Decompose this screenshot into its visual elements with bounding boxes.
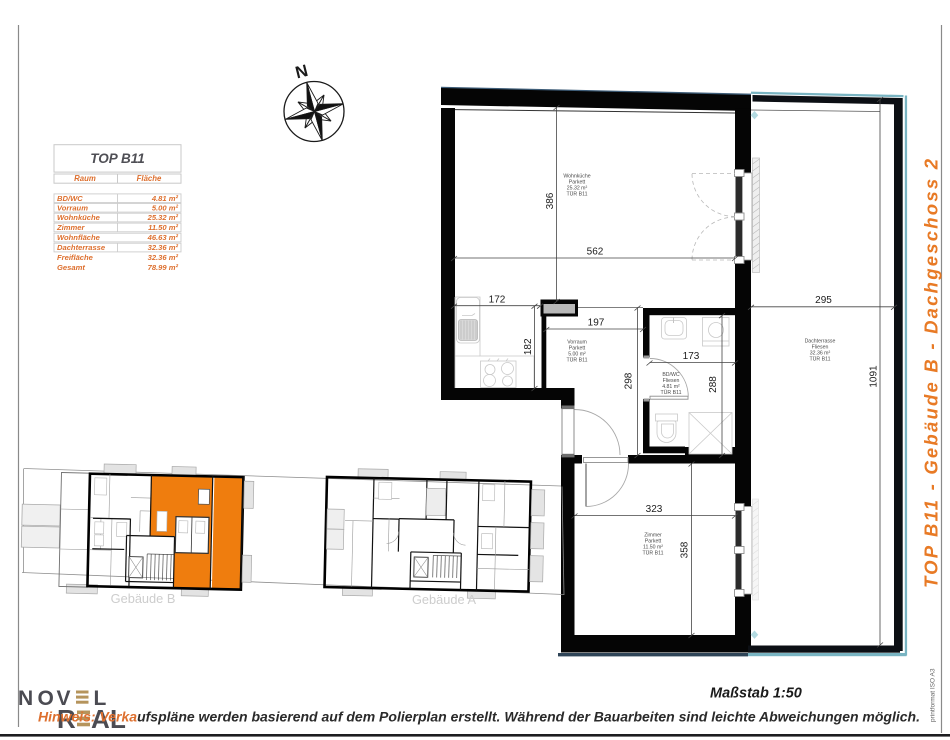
svg-text:Maßstab 1:50: Maßstab 1:50 (710, 686, 802, 702)
svg-text:11.50 m²: 11.50 m² (148, 223, 178, 232)
svg-text:Zimmer: Zimmer (56, 223, 85, 232)
svg-text:N: N (18, 687, 33, 710)
svg-text:358: 358 (680, 541, 691, 558)
svg-text:25.32 m²: 25.32 m² (147, 213, 179, 222)
svg-text:TOP B11 - Gebäude B - Dachgesc: TOP B11 - Gebäude B - Dachgeschoss 2 (921, 158, 942, 588)
svg-text:172: 172 (489, 294, 506, 305)
svg-text:1091: 1091 (868, 365, 879, 388)
svg-text:5.00 m²: 5.00 m² (152, 203, 179, 212)
svg-text:N: N (293, 61, 310, 82)
svg-text:Wohnfläche: Wohnfläche (57, 233, 101, 242)
svg-text:Raum: Raum (74, 174, 96, 183)
svg-text:32.36 m²: 32.36 m² (148, 243, 179, 252)
svg-text:TÜR B11: TÜR B11 (567, 357, 588, 364)
svg-text:Gebäude B: Gebäude B (111, 591, 176, 606)
svg-text:Wohnküche: Wohnküche (57, 213, 101, 222)
svg-text:Vorraum: Vorraum (57, 203, 88, 212)
svg-text:288: 288 (708, 376, 719, 393)
svg-text:Gesamt: Gesamt (57, 263, 85, 272)
svg-text:4.81 m²: 4.81 m² (151, 194, 179, 203)
svg-text:32.36 m²: 32.36 m² (148, 253, 179, 262)
svg-text:TÜR B11: TÜR B11 (810, 356, 831, 363)
svg-text:TOP B11: TOP B11 (90, 151, 145, 166)
svg-text:197: 197 (588, 318, 605, 329)
svg-text:BD/WC: BD/WC (57, 194, 83, 203)
svg-text:printformat ISO A3: printformat ISO A3 (930, 668, 937, 722)
svg-text:182: 182 (523, 338, 534, 355)
svg-text:323: 323 (646, 504, 663, 515)
svg-text:TÜR B11: TÜR B11 (643, 550, 664, 557)
svg-text:386: 386 (545, 192, 556, 209)
svg-text:Dachterrasse: Dachterrasse (57, 243, 106, 252)
svg-text:173: 173 (683, 351, 700, 362)
svg-text:295: 295 (815, 295, 832, 306)
svg-text:Freifläche: Freifläche (57, 253, 94, 262)
svg-text:78.99 m²: 78.99 m² (148, 263, 179, 272)
svg-text:TÜR B11: TÜR B11 (661, 389, 682, 396)
svg-text:TÜR B11: TÜR B11 (567, 191, 588, 198)
svg-text:Hinweis: Verkaufspläne werden: Hinweis: Verkaufspläne werden basierend … (38, 710, 920, 725)
svg-text:46.63 m²: 46.63 m² (147, 233, 179, 242)
svg-text:Gebäude A: Gebäude A (412, 592, 477, 607)
svg-text:Fläche: Fläche (137, 174, 162, 183)
svg-text:298: 298 (624, 372, 635, 389)
svg-text:562: 562 (587, 247, 604, 258)
svg-text:O: O (38, 687, 54, 710)
